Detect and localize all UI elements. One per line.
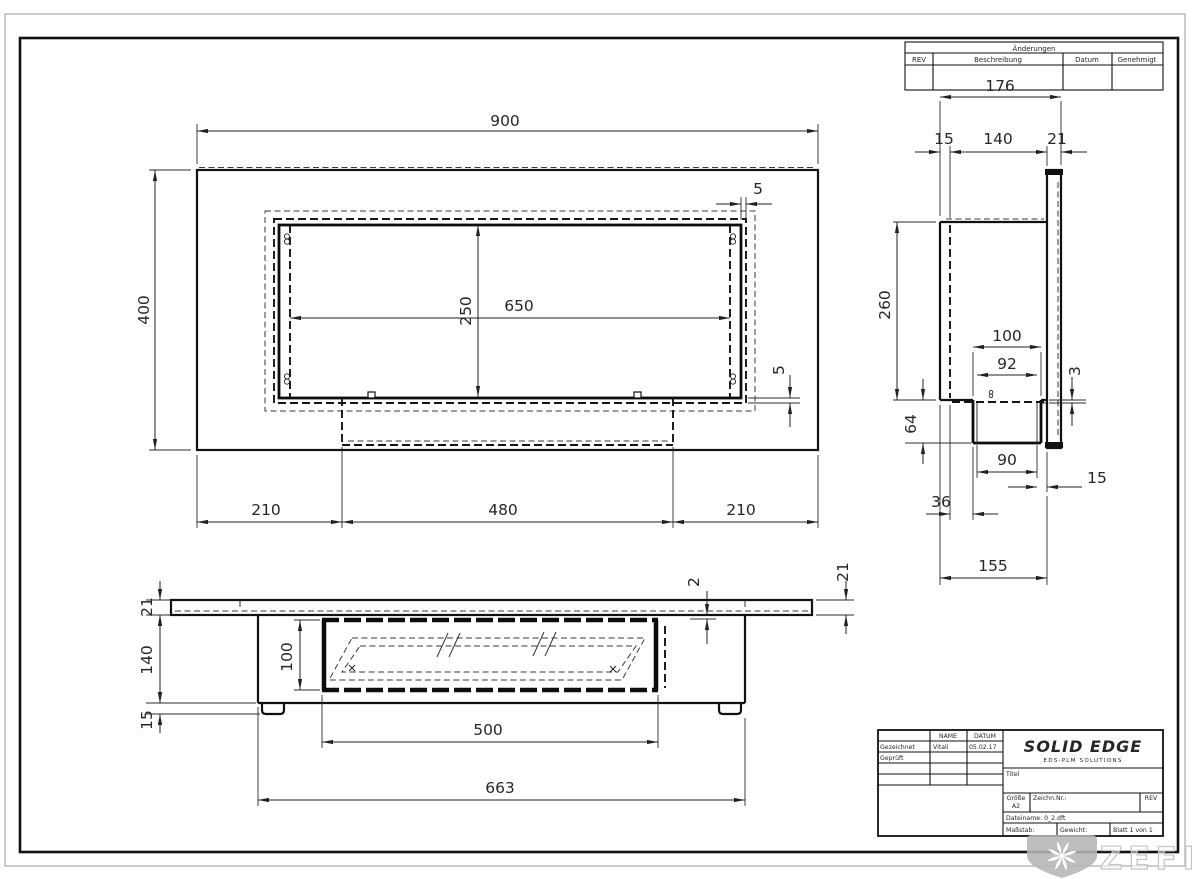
svg-text:140: 140 (983, 130, 1013, 148)
svg-text:260: 260 (876, 290, 894, 320)
mount-tab (368, 392, 375, 398)
corner-clip (730, 374, 735, 384)
svg-text:15: 15 (138, 710, 156, 730)
dim-bottom-panel-right: 21 (816, 562, 854, 634)
svg-text:3: 3 (1066, 366, 1084, 376)
burner-tray-outline (329, 638, 645, 680)
svg-text:155: 155 (978, 557, 1008, 575)
dim-bottom-opening-height: 100 (278, 620, 320, 690)
front-view: 900 400 650 250 5 (135, 112, 818, 528)
dim-opening-height: 250 (457, 225, 478, 397)
svg-text:21: 21 (834, 562, 852, 582)
svg-text:210: 210 (726, 501, 756, 519)
svg-text:2: 2 (685, 577, 703, 587)
svg-text:90: 90 (997, 451, 1017, 469)
svg-text:100: 100 (992, 327, 1022, 345)
panel-cap-top (1045, 169, 1063, 175)
dim-base-depth: 155 (940, 405, 1047, 585)
dim-opening-width: 650 (290, 297, 730, 318)
changes-col-approved: Genehmigt (1118, 56, 1157, 64)
svg-text:5: 5 (770, 365, 788, 375)
filename-label: Dateiname: 0_2.dft (1006, 815, 1066, 822)
burner-tray-inner (342, 646, 636, 672)
changes-title: Änderungen (1013, 44, 1056, 53)
svg-text:15: 15 (1087, 469, 1107, 487)
dim-burner-bottom: 90 (977, 445, 1037, 478)
svg-text:5: 5 (753, 180, 763, 198)
dim-glass-gap: 3 (1049, 366, 1086, 426)
zefire-watermark: ZEFIRE (1027, 835, 1192, 878)
solid-edge-sub: EDS-PLM SOLUTIONS (1044, 758, 1123, 764)
svg-text:21: 21 (1047, 130, 1067, 148)
drawn-name: Vitali (933, 744, 949, 751)
changes-table: Änderungen REV Beschreibung Datum Genehm… (905, 42, 1163, 90)
svg-text:500: 500 (473, 721, 503, 739)
svg-text:36: 36 (931, 493, 951, 511)
drawing-sheet: Änderungen REV Beschreibung Datum Genehm… (0, 0, 1192, 879)
dim-front-height: 400 (135, 170, 191, 450)
svg-text:100: 100 (278, 642, 296, 672)
corner-clip (284, 234, 289, 244)
changes-col-desc: Beschreibung (974, 56, 1022, 64)
size-label: Größe (1007, 795, 1026, 802)
corner-clip (284, 374, 289, 384)
dim-burner-height: 64 (902, 379, 971, 464)
title-label: Titel (1005, 771, 1020, 778)
svg-text:900: 900 (490, 112, 520, 130)
changes-col-rev: REV (912, 56, 926, 64)
svg-text:15: 15 (934, 130, 954, 148)
svg-text:250: 250 (457, 296, 475, 326)
drawn-date: 05.02.17 (969, 744, 997, 751)
dim-lip-bottom: 5 (748, 365, 800, 427)
panel-cap-bottom (1045, 442, 1063, 448)
scale-label: Maßstab: (1006, 827, 1034, 834)
corner-clip (989, 390, 993, 397)
corner-clip (730, 234, 735, 244)
name-header: NAME (939, 733, 957, 740)
drawing-number-label: Zeichn.Nr.: (1033, 795, 1067, 802)
dim-lip-top: 5 (716, 180, 772, 220)
foot-left (262, 703, 284, 714)
dim-burner-inner: 92 (977, 355, 1037, 375)
dim-burner-offset: 36 (926, 405, 998, 520)
sheet-label: Blatt 1 von 1 (1113, 827, 1153, 834)
svg-text:650: 650 (504, 297, 534, 315)
changes-col-date: Datum (1075, 56, 1099, 64)
svg-text:176: 176 (985, 77, 1015, 95)
dim-front-width: 900 (197, 112, 818, 164)
dim-feet-height: 15 (138, 685, 260, 733)
date-header: DATUM (974, 733, 996, 740)
svg-text:210: 210 (251, 501, 281, 519)
svg-text:480: 480 (488, 501, 518, 519)
svg-text:140: 140 (138, 645, 156, 675)
svg-text:400: 400 (135, 295, 153, 325)
screw-mark (349, 665, 616, 672)
rev-label: REV (1145, 795, 1158, 802)
dim-bottom-chain: 210 480 210 (197, 447, 818, 528)
title-block: NAME DATUM Gezeichnet Vitali 05.02.17 Ge… (878, 730, 1163, 836)
dim-bottom-body-height: 140 (138, 615, 256, 703)
dim-bottom-panel-left: 21 (138, 581, 171, 634)
size-value: A2 (1012, 803, 1020, 810)
side-view: 176 15 140 21 260 100 (876, 77, 1107, 585)
svg-text:92: 92 (997, 355, 1017, 373)
svg-text:21: 21 (138, 597, 156, 617)
zefire-brand-text: ZEFIRE (1100, 841, 1192, 877)
drawn-label: Gezeichnet (880, 744, 915, 751)
weight-label: Gewicht: (1060, 827, 1087, 834)
bottom-view: 21 140 15 100 2 (138, 562, 854, 806)
foot-right (719, 703, 741, 714)
checked-label: Geprüft (880, 755, 904, 762)
svg-text:64: 64 (902, 414, 920, 434)
mount-tab (634, 392, 641, 398)
dim-side-body-height: 260 (876, 222, 936, 400)
solid-edge-logo: SOLID EDGE (1024, 737, 1142, 756)
svg-text:663: 663 (485, 779, 515, 797)
